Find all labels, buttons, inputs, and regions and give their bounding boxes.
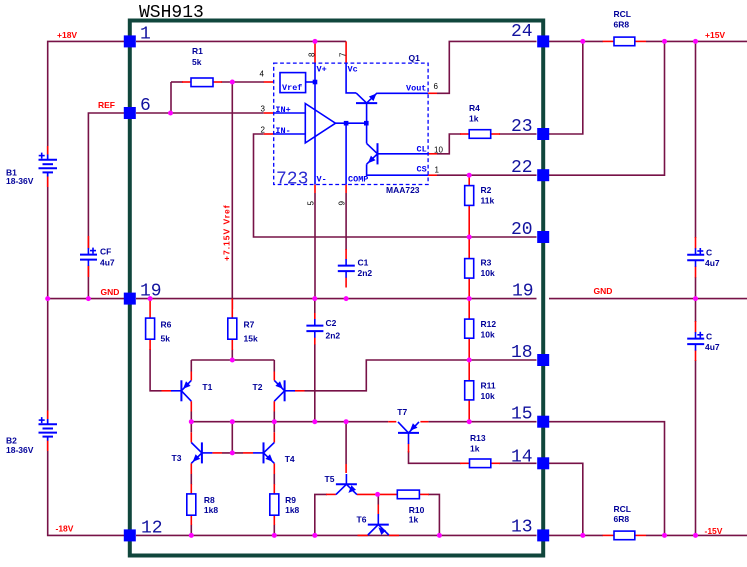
svg-text:RCL: RCL — [614, 504, 631, 514]
svg-text:12: 12 — [141, 518, 163, 538]
svg-text:-15V: -15V — [705, 526, 723, 536]
svg-text:4: 4 — [260, 70, 265, 79]
svg-text:GND: GND — [101, 287, 120, 297]
svg-text:C: C — [706, 248, 712, 258]
svg-text:13: 13 — [511, 517, 533, 537]
svg-text:10k: 10k — [481, 268, 495, 278]
svg-text:T6: T6 — [357, 515, 367, 525]
svg-text:19: 19 — [140, 282, 162, 302]
svg-text:T7: T7 — [397, 407, 407, 417]
svg-text:2n2: 2n2 — [358, 268, 373, 278]
svg-text:CS: CS — [417, 165, 427, 175]
svg-text:+7.15V Vref: +7.15V Vref — [222, 204, 232, 261]
svg-text:6R8: 6R8 — [614, 514, 630, 524]
svg-text:10k: 10k — [481, 391, 495, 401]
svg-text:C1: C1 — [358, 258, 369, 268]
svg-text:V+: V+ — [317, 65, 327, 75]
svg-text:T3: T3 — [172, 453, 182, 463]
svg-text:REF: REF — [98, 100, 115, 110]
svg-text:8: 8 — [308, 52, 317, 57]
svg-text:15: 15 — [511, 405, 533, 425]
svg-text:5k: 5k — [161, 334, 171, 344]
svg-text:14: 14 — [511, 447, 533, 467]
svg-text:T5: T5 — [325, 474, 335, 484]
svg-text:15k: 15k — [244, 334, 258, 344]
svg-text:R6: R6 — [161, 320, 172, 330]
svg-text:CF: CF — [100, 247, 111, 257]
svg-text:V-: V- — [317, 175, 327, 185]
svg-text:10: 10 — [434, 146, 443, 155]
svg-text:Q1: Q1 — [409, 53, 421, 63]
svg-text:GND: GND — [594, 286, 613, 296]
svg-text:22: 22 — [511, 158, 533, 178]
svg-text:Vout: Vout — [406, 83, 426, 93]
svg-text:18-36V: 18-36V — [6, 445, 34, 455]
svg-text:T2: T2 — [253, 382, 263, 392]
svg-text:1k: 1k — [409, 515, 419, 525]
svg-text:2: 2 — [261, 126, 266, 135]
svg-text:T1: T1 — [202, 382, 212, 392]
svg-text:R9: R9 — [285, 495, 296, 505]
svg-text:Vc: Vc — [348, 65, 358, 75]
svg-text:4u7: 4u7 — [100, 258, 115, 268]
svg-text:R10: R10 — [409, 505, 425, 515]
svg-text:6R8: 6R8 — [614, 20, 630, 30]
svg-text:1: 1 — [435, 165, 440, 174]
svg-text:5: 5 — [307, 201, 316, 206]
svg-text:Vref: Vref — [282, 83, 302, 93]
svg-text:3: 3 — [261, 105, 266, 114]
svg-text:R8: R8 — [204, 495, 215, 505]
svg-text:R11: R11 — [481, 381, 496, 391]
svg-text:20: 20 — [511, 220, 533, 240]
svg-text:R4: R4 — [469, 103, 480, 113]
svg-text:18: 18 — [511, 343, 533, 363]
svg-text:CL: CL — [417, 145, 427, 155]
svg-text:9: 9 — [338, 201, 347, 206]
svg-text:18-36V: 18-36V — [6, 176, 34, 186]
svg-text:+15V: +15V — [705, 30, 725, 40]
svg-text:7: 7 — [339, 52, 348, 57]
svg-text:11k: 11k — [481, 196, 495, 206]
svg-text:R13: R13 — [470, 433, 486, 443]
svg-text:R3: R3 — [481, 258, 492, 268]
svg-text:723: 723 — [276, 170, 308, 190]
svg-text:4u7: 4u7 — [705, 258, 720, 268]
svg-text:1: 1 — [140, 25, 151, 45]
svg-text:COMP: COMP — [348, 175, 368, 185]
svg-text:24: 24 — [511, 22, 533, 42]
svg-text:IN-: IN- — [275, 126, 290, 136]
svg-text:2n2: 2n2 — [326, 331, 341, 341]
svg-text:C2: C2 — [326, 318, 337, 328]
svg-text:B2: B2 — [6, 436, 17, 446]
svg-text:R1: R1 — [192, 46, 203, 56]
svg-text:6: 6 — [140, 96, 151, 116]
svg-text:23: 23 — [511, 117, 533, 137]
svg-text:19: 19 — [512, 282, 534, 302]
svg-text:5k: 5k — [192, 57, 202, 67]
svg-text:1k: 1k — [469, 114, 479, 124]
svg-text:T4: T4 — [285, 454, 295, 464]
svg-text:WSH913: WSH913 — [139, 3, 204, 23]
svg-text:10k: 10k — [481, 330, 495, 340]
svg-text:IN+: IN+ — [275, 105, 290, 115]
svg-text:1k8: 1k8 — [285, 505, 299, 515]
svg-text:R12: R12 — [481, 319, 497, 329]
svg-text:6: 6 — [434, 82, 439, 91]
svg-text:1k8: 1k8 — [204, 505, 218, 515]
svg-text:MAA723: MAA723 — [386, 185, 420, 195]
svg-text:C: C — [706, 331, 712, 341]
svg-text:R2: R2 — [481, 185, 492, 195]
svg-text:R7: R7 — [244, 320, 255, 330]
svg-text:+18V: +18V — [57, 30, 77, 40]
svg-text:RCL: RCL — [614, 9, 631, 19]
svg-text:-18V: -18V — [56, 524, 74, 534]
svg-text:1k: 1k — [470, 444, 480, 454]
svg-text:4u7: 4u7 — [705, 342, 720, 352]
